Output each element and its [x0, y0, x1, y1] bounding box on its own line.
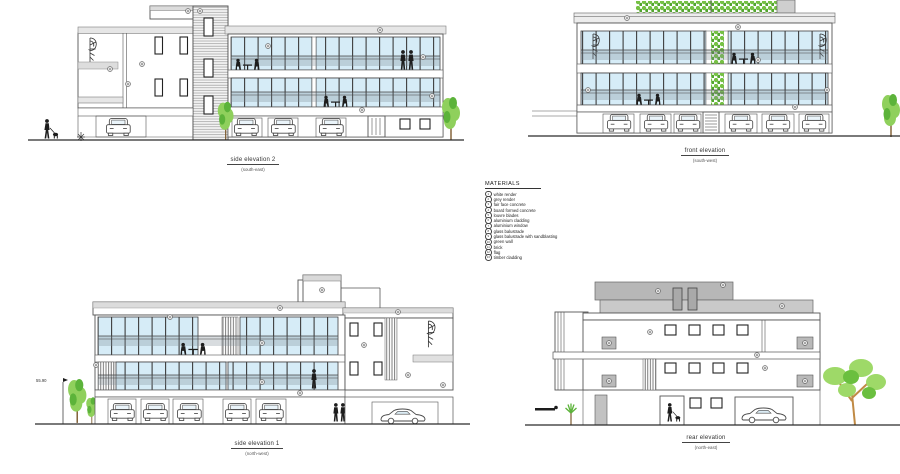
flag-icon — [63, 378, 68, 382]
material-tag-icon — [607, 379, 612, 384]
material-tag-icon — [441, 383, 446, 388]
material-tag-icon — [298, 391, 303, 396]
louvre-strip — [385, 318, 397, 380]
material-tag-icon — [260, 341, 265, 346]
material-tag-icon — [607, 341, 612, 346]
material-tag-icon — [360, 108, 365, 113]
roof-planting — [636, 1, 780, 13]
green-wall — [711, 73, 724, 105]
tree-icon — [882, 94, 900, 137]
material-tag-icon — [763, 366, 768, 371]
panel-front-elevation: front elevation (south-west) — [528, 0, 900, 160]
tree-icon — [68, 379, 86, 423]
level-marker-text: 55.90 — [36, 378, 47, 383]
elevation-title: rear elevation — [682, 435, 729, 443]
material-tag-icon — [648, 330, 653, 335]
louvre-strip — [643, 359, 656, 390]
material-tag-icon — [362, 343, 367, 348]
materials-title: MATERIALS — [485, 181, 541, 189]
material-tag-icon — [430, 94, 435, 99]
material-tag-icon — [278, 306, 283, 311]
material-tag-icon — [396, 310, 401, 315]
car-icon — [802, 114, 825, 131]
material-tag-icon — [656, 289, 661, 294]
material-tag-icon — [168, 315, 173, 320]
material-tag-icon — [825, 88, 830, 93]
elevation-subtitle: (north-west) — [197, 451, 317, 456]
label-rear-elevation: rear elevation (north-east) — [646, 426, 766, 450]
roof-slab — [595, 282, 733, 300]
materials-legend: MATERIALS 1white render 2grey render 3fa… — [485, 181, 571, 260]
material-tag-icon — [94, 363, 99, 368]
material-tag-icon — [803, 379, 808, 384]
car-icon — [319, 118, 343, 135]
label-side-elevation-1: side elevation 1 (north-west) — [197, 432, 317, 456]
rear-elevation-drawing — [525, 276, 900, 428]
material-tag-icon — [378, 28, 383, 33]
side-elevation-1-drawing: 55.90 — [30, 270, 475, 430]
panel-side-elevation-2: side elevation 2 (south-east) — [28, 4, 468, 172]
car-icon — [259, 403, 283, 420]
car-icon — [106, 118, 130, 135]
panel-side-elevation-1: 55.90 — [30, 270, 475, 455]
material-item: 13timber cladding — [485, 255, 571, 260]
car-icon — [177, 403, 201, 420]
car-icon — [110, 403, 134, 420]
material-tag-icon — [625, 16, 630, 21]
label-side-elevation-2: side elevation 2 (south-east) — [193, 148, 313, 172]
car-icon — [225, 403, 249, 420]
material-tag-icon — [421, 55, 426, 60]
elevation-subtitle: (south-west) — [645, 158, 765, 163]
material-tag-icon — [793, 105, 798, 110]
material-tag-icon — [320, 288, 325, 293]
car-icon — [143, 403, 167, 420]
palm-icon — [566, 404, 577, 426]
car-icon — [644, 114, 667, 131]
person-walking-dog-icon — [44, 119, 58, 138]
tree-icon — [442, 97, 460, 140]
bench-figure-icon — [535, 408, 555, 411]
car-icon — [766, 114, 789, 131]
car-icon — [607, 114, 630, 131]
material-tag-icon — [736, 25, 741, 30]
elevation-subtitle: (north-east) — [646, 445, 766, 450]
material-number-badge: 13 — [485, 254, 492, 261]
elevation-subtitle: (south-east) — [193, 167, 313, 172]
material-tag-icon — [198, 9, 203, 14]
material-tag-icon — [186, 9, 191, 14]
material-tag-icon — [126, 82, 131, 87]
car-icon — [271, 118, 295, 135]
panel-rear-elevation: rear elevation (north-east) — [525, 276, 900, 456]
side-elevation-2-drawing — [28, 4, 468, 150]
front-elevation-drawing — [528, 0, 900, 146]
car-icon — [729, 114, 752, 131]
elevation-title: front elevation — [681, 148, 730, 156]
material-tag-icon — [108, 67, 113, 72]
material-tag-icon — [260, 380, 265, 385]
elevation-title: side elevation 2 — [227, 157, 280, 165]
material-tag-icon — [140, 62, 145, 67]
material-tag-icon — [756, 58, 761, 63]
tree-icon — [823, 359, 886, 425]
material-tag-icon — [755, 353, 760, 358]
material-tag-icon — [586, 88, 591, 93]
label-front-elevation: front elevation (south-west) — [645, 139, 765, 163]
elevation-title: side elevation 1 — [231, 441, 284, 449]
car-icon — [676, 114, 699, 131]
material-tag-icon — [721, 283, 726, 288]
material-tag-icon — [803, 341, 808, 346]
material-tag-icon — [406, 373, 411, 378]
drawing-sheet: side elevation 2 (south-east) — [0, 0, 900, 474]
material-tag-icon — [266, 44, 271, 49]
material-tag-icon — [780, 304, 785, 309]
car-icon — [234, 118, 258, 135]
